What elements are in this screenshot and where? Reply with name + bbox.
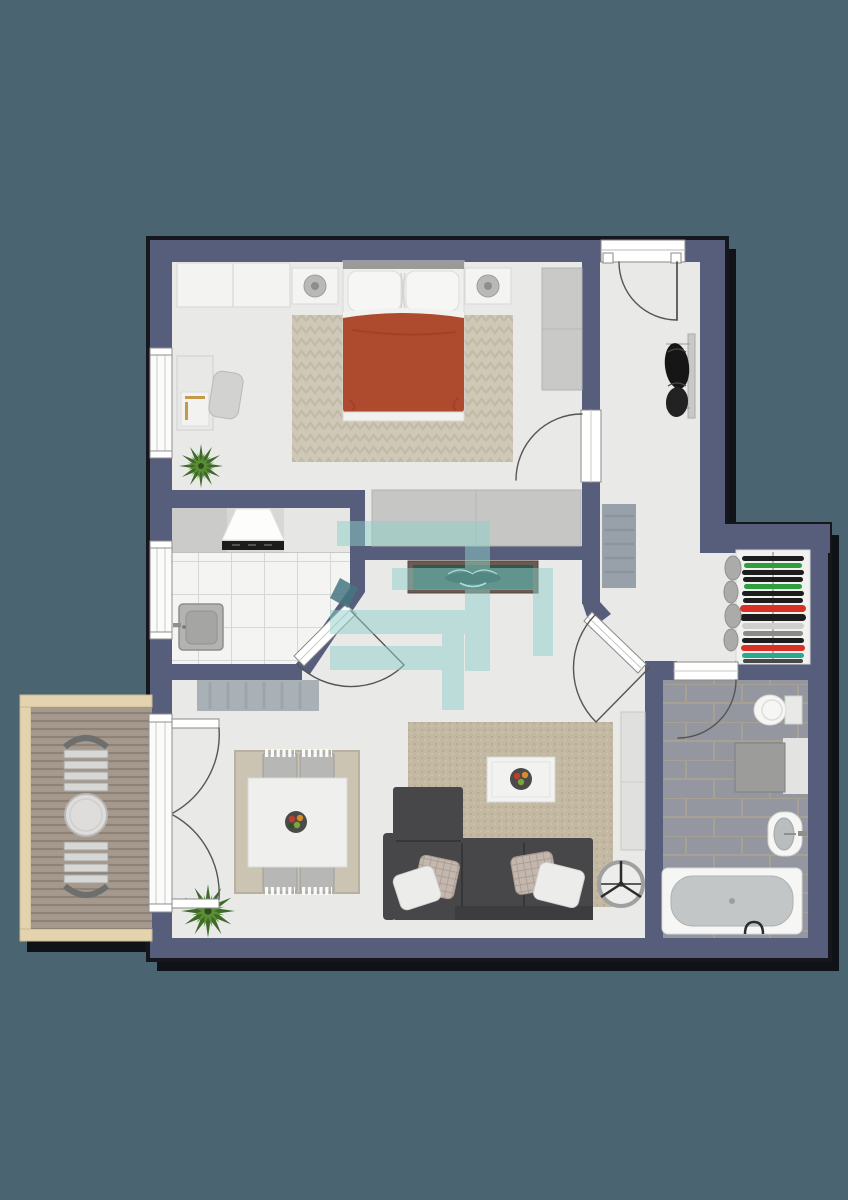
doormat-hall xyxy=(602,504,636,588)
door-leaf xyxy=(172,899,219,908)
nightstand-right xyxy=(465,268,511,304)
fan xyxy=(599,861,643,906)
pillow xyxy=(348,271,401,311)
coffee-table xyxy=(487,757,555,802)
open-wardrobe xyxy=(724,550,810,664)
bedroom-window xyxy=(150,348,172,458)
kitchen-sink xyxy=(173,604,223,650)
wall-bedroom-corridor-upper xyxy=(582,262,600,412)
duvet xyxy=(343,312,464,412)
toilet xyxy=(754,695,802,725)
kitchen-window xyxy=(150,541,172,639)
balcony-table xyxy=(65,794,107,836)
folded-clothes xyxy=(740,556,806,663)
bathtub xyxy=(662,868,802,934)
faucet-icon xyxy=(798,831,807,836)
kitchen-counter-left xyxy=(172,508,227,553)
footboard xyxy=(343,412,464,421)
double-bed xyxy=(343,261,464,421)
door-leaf xyxy=(172,719,219,728)
washer-niche xyxy=(783,738,808,794)
wall-kitchen-north xyxy=(150,490,365,508)
faucet-icon xyxy=(173,623,181,627)
floor-plan-canvas xyxy=(0,0,848,1200)
washing-machine xyxy=(735,743,785,792)
wall-wardrobe-north xyxy=(700,524,830,553)
nightstand-left xyxy=(292,268,338,304)
pillow xyxy=(406,271,459,311)
balcony xyxy=(20,695,152,941)
wall-bedroom-corridor-lower xyxy=(582,480,600,604)
sofa-backrest xyxy=(455,906,593,920)
wall-bathroom-west xyxy=(645,661,663,938)
tall-cabinet xyxy=(621,712,645,850)
wall-bathroom-north-left xyxy=(645,661,677,680)
fruit-bowl-dining xyxy=(285,811,307,833)
doormat-living xyxy=(197,680,319,711)
bathroom xyxy=(662,680,808,938)
